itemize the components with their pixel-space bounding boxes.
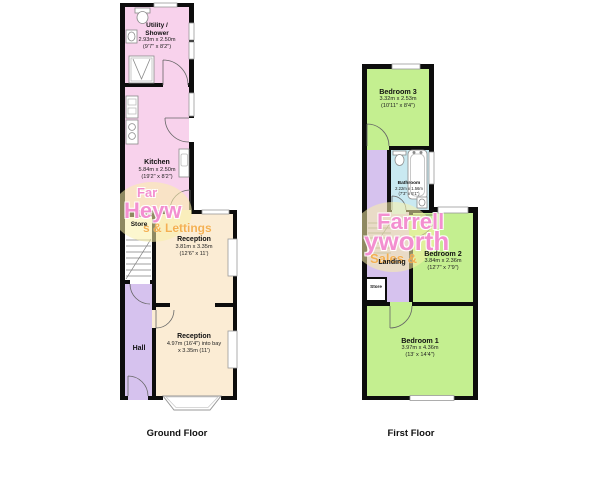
room-name: Store: [131, 221, 148, 229]
door-opening-bedroom3: [367, 146, 389, 150]
room-dimensions-imperial: (13' x 14'4"): [401, 352, 439, 359]
room-label-hall: Hall: [133, 345, 146, 353]
room-dimensions-metric: 5.84m x 2.50m: [139, 167, 176, 174]
window-utility-right-1: [189, 23, 194, 40]
room-label-bathroom: Bathroom 2.22m x 1.56m (7'3" x 5'1"): [395, 181, 423, 197]
window-reception1-right: [228, 239, 237, 276]
room-dimensions-imperial: x 3.35m (11'): [167, 348, 221, 355]
sink-bowl-2-icon: [129, 133, 136, 140]
room-name: Shower: [139, 30, 176, 38]
room-dimensions-metric: 3.97m x 4.36m: [401, 345, 439, 352]
door-opening-hall-stairs: [130, 280, 150, 284]
first-floor-title: First Floor: [388, 428, 435, 439]
window-bedroom3-top: [392, 64, 420, 69]
room-dimensions-imperial: (12'7" x 7'9"): [424, 265, 462, 272]
door-opening-hall-reception: [152, 310, 156, 328]
room-label-store-ground: Store: [131, 221, 148, 229]
door-opening-bathroom: [392, 210, 406, 214]
bath-tap-icon: [413, 151, 415, 153]
door-opening-bedroom1: [390, 302, 412, 306]
basin-bowl-icon: [128, 32, 135, 41]
window-bathroom-right: [429, 152, 434, 184]
room-dimensions-metric: 3.84m x 2.36m: [424, 258, 462, 265]
room-dimensions-metric: 3.32m x 2.53m: [379, 96, 417, 103]
room-name: Bedroom 3: [379, 88, 417, 96]
room-label-store-first: Store: [370, 284, 382, 289]
room-dimensions-metric: 4.97m (16'4") into bay: [167, 341, 221, 348]
basin-bowl-icon: [419, 199, 425, 206]
room-dimensions-imperial: (10'11" x 8'4"): [379, 103, 417, 110]
room-label-reception-1: Reception 3.81m x 3.35m (12'6" x 11'): [176, 236, 213, 257]
room-name: Hall: [133, 345, 146, 353]
door-opening-kitchen-reception: [169, 210, 191, 214]
floorplan-graphics: [0, 0, 600, 489]
room-label-bedroom-2: Bedroom 2 3.84m x 2.36m (12'7" x 7'9"): [424, 250, 462, 272]
window-reception1-top: [202, 210, 229, 214]
window-bedroom2-top: [438, 207, 468, 213]
toilet-icon: [395, 155, 404, 166]
room-name: Landing: [378, 259, 405, 267]
room-dimensions-imperial: (19'2" x 8'2"): [139, 174, 176, 181]
room-store-first: [366, 278, 386, 301]
window-utility-top: [154, 3, 177, 7]
room-name: Utility /: [139, 22, 176, 30]
room-label-bedroom-3: Bedroom 3 3.32m x 2.53m (10'11" x 8'4"): [379, 88, 417, 110]
room-reception-1: [156, 214, 233, 303]
room-name: Bedroom 2: [424, 250, 462, 258]
opening-between-receptions: [170, 303, 215, 307]
window-utility-right-2: [189, 42, 194, 59]
kitchen-counter-sink-icon: [181, 154, 188, 166]
floorplan-canvas: Far Heyw s & Lettings Farrell yworth Sal…: [0, 0, 600, 489]
front-door-opening: [128, 396, 148, 400]
window-kitchen-right: [189, 93, 194, 116]
room-label-bedroom-1: Bedroom 1 3.97m x 4.36m (13' x 14'4"): [401, 337, 439, 359]
room-dimensions-metric: 2.93m x 2.50m: [139, 37, 176, 44]
room-dimensions-imperial: (7'3" x 5'1"): [395, 192, 423, 197]
room-dimensions-metric: 3.81m x 3.35m: [176, 244, 213, 251]
room-name: Reception: [167, 333, 221, 341]
room-label-reception-2: Reception 4.97m (16'4") into bay x 3.35m…: [167, 333, 221, 354]
room-label-landing: Landing: [378, 259, 405, 267]
room-name: Store: [370, 284, 382, 289]
door-opening-kitchen-side: [189, 118, 194, 142]
window-reception2-right: [228, 331, 237, 368]
room-name: Bedroom 1: [401, 337, 439, 345]
room-name: Kitchen: [139, 159, 176, 167]
room-label-utility: Utility / Shower 2.93m x 2.50m (9'7" x 8…: [139, 22, 176, 51]
room-name: Reception: [176, 236, 213, 244]
door-opening-utility: [163, 83, 188, 87]
door-opening-bedroom2: [409, 215, 413, 237]
room-dimensions-imperial: (9'7" x 8'2"): [139, 44, 176, 51]
room-dimensions-imperial: (12'6" x 11'): [176, 251, 213, 258]
sink-bowl-1-icon: [129, 124, 136, 131]
window-bedroom1-bottom: [410, 396, 454, 401]
bath-tap-icon: [420, 151, 422, 153]
ground-floor-title: Ground Floor: [147, 428, 208, 439]
room-label-kitchen: Kitchen 5.84m x 2.50m (19'2" x 8'2"): [139, 159, 176, 180]
